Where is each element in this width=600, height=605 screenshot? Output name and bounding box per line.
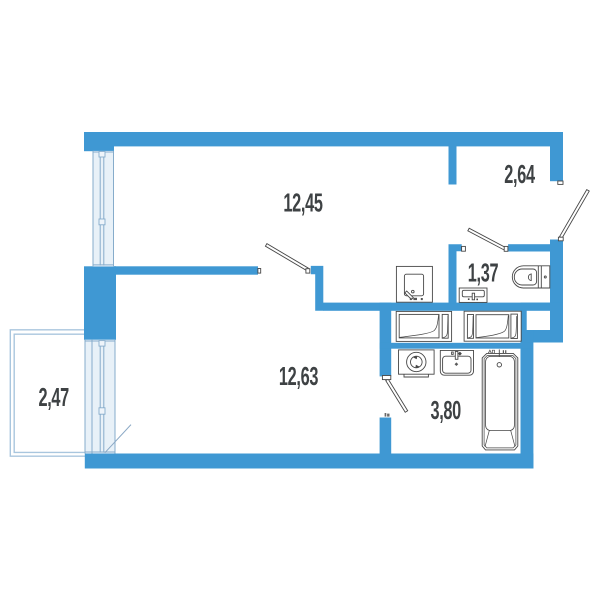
svg-text:2,47: 2,47 xyxy=(38,383,68,412)
svg-text:2,64: 2,64 xyxy=(504,160,535,189)
svg-text:1,37: 1,37 xyxy=(468,259,498,288)
svg-text:3,80: 3,80 xyxy=(430,396,461,425)
svg-text:12,45: 12,45 xyxy=(283,189,323,218)
svg-text:12,63: 12,63 xyxy=(279,362,319,391)
